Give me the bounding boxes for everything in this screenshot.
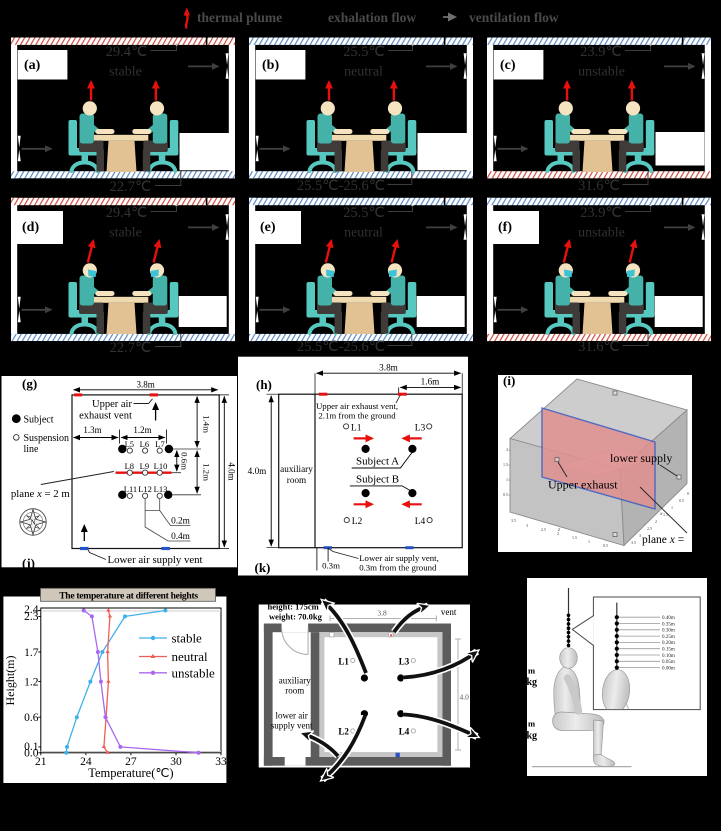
svg-text:L4: L4: [399, 727, 410, 737]
svg-text:25.5℃-25.6℃: 25.5℃-25.6℃: [297, 178, 385, 194]
svg-text:1.7: 1.7: [24, 647, 39, 659]
svg-text:height: 175cm: height: 175cm: [268, 602, 319, 612]
svg-text:thermal plume: thermal plume: [197, 10, 282, 25]
svg-text:2.5: 2.5: [647, 526, 652, 531]
svg-text:(k): (k): [255, 560, 271, 575]
svg-text:2: 2: [506, 447, 508, 452]
svg-text:(c): (c): [500, 58, 516, 73]
svg-text:vent: vent: [441, 607, 457, 617]
svg-text:(j): (j): [22, 556, 35, 571]
svg-text:0.4m: 0.4m: [171, 532, 191, 542]
svg-text:1: 1: [506, 477, 508, 482]
svg-text:auxiliary: auxiliary: [280, 464, 313, 474]
svg-text:neutral: neutral: [172, 649, 208, 664]
svg-text:Suspension: Suspension: [24, 433, 70, 444]
svg-text:L11: L11: [124, 484, 137, 494]
svg-text:unstable: unstable: [578, 65, 625, 80]
svg-text:lower supply: lower supply: [610, 451, 672, 465]
svg-text:0.5: 0.5: [603, 543, 608, 548]
svg-text:room: room: [287, 475, 306, 485]
svg-text:0.05m: 0.05m: [662, 659, 675, 665]
svg-text:room: room: [285, 686, 304, 696]
svg-text:23.9℃: 23.9℃: [580, 205, 622, 221]
svg-text:L3: L3: [399, 657, 410, 667]
svg-text:Height(m): Height(m): [3, 656, 17, 706]
svg-text:0.30m: 0.30m: [662, 628, 675, 634]
svg-text:(b): (b): [262, 58, 279, 73]
svg-text:lower air: lower air: [275, 711, 307, 721]
svg-text:m: m: [528, 666, 535, 676]
svg-text:3.5: 3.5: [511, 518, 516, 523]
svg-text:x: x: [659, 511, 663, 517]
svg-text:29.4℃: 29.4℃: [106, 44, 148, 60]
svg-text:auxiliary: auxiliary: [279, 676, 311, 686]
svg-text:23.9℃: 23.9℃: [580, 44, 622, 60]
svg-text:1.3m: 1.3m: [83, 425, 101, 435]
svg-text:stable: stable: [109, 65, 142, 80]
svg-text:0.5: 0.5: [503, 492, 508, 497]
svg-text:4.0m: 4.0m: [248, 466, 267, 476]
svg-text:exhalation flow: exhalation flow: [328, 10, 416, 25]
svg-text:4.0m: 4.0m: [227, 462, 237, 480]
svg-text:3.8m: 3.8m: [379, 363, 398, 373]
svg-text:1.2m: 1.2m: [202, 463, 212, 481]
svg-text:Subject A: Subject A: [356, 456, 399, 468]
svg-text:2.1m from the ground: 2.1m from the ground: [318, 411, 396, 421]
svg-text:33: 33: [215, 756, 227, 768]
svg-text:Upper air exhaust vent,: Upper air exhaust vent,: [316, 401, 398, 411]
svg-text:4.0: 4.0: [460, 693, 470, 702]
svg-text:m: m: [528, 719, 535, 729]
svg-text:0.5: 0.5: [679, 498, 684, 503]
svg-text:neutral: neutral: [344, 65, 383, 80]
svg-text:L3: L3: [415, 424, 426, 434]
svg-text:Upper exhaust: Upper exhaust: [548, 478, 618, 492]
svg-text:2.5: 2.5: [541, 527, 546, 532]
svg-text:Temperature(℃): Temperature(℃): [88, 766, 173, 780]
svg-text:Subject B: Subject B: [356, 474, 399, 486]
svg-text:Lower air supply vent: Lower air supply vent: [108, 554, 203, 566]
svg-text:1.2m: 1.2m: [133, 425, 151, 435]
svg-text:0.40m: 0.40m: [662, 615, 675, 621]
svg-text:(e): (e): [260, 220, 276, 235]
svg-text:0.2m: 0.2m: [171, 517, 191, 527]
svg-text:1.2: 1.2: [24, 677, 39, 689]
svg-text:25.5℃-25.6℃: 25.5℃-25.6℃: [297, 339, 385, 355]
svg-text:1.5: 1.5: [572, 535, 577, 540]
svg-text:L4: L4: [415, 517, 426, 527]
svg-text:0.3m from the ground: 0.3m from the ground: [359, 563, 437, 573]
svg-text:1.5: 1.5: [503, 462, 508, 467]
svg-text:0.6: 0.6: [24, 712, 39, 724]
svg-text:1.4m: 1.4m: [202, 415, 212, 433]
svg-text:25.5℃: 25.5℃: [343, 44, 385, 60]
svg-text:neutral: neutral: [344, 226, 383, 241]
svg-text:25.5℃: 25.5℃: [343, 205, 385, 221]
svg-text:Subject: Subject: [24, 415, 54, 426]
svg-text:L5: L5: [125, 439, 134, 449]
svg-text:L13: L13: [154, 484, 168, 494]
svg-text:0.1: 0.1: [24, 741, 39, 753]
svg-text:3: 3: [639, 533, 641, 538]
svg-text:31.6℃: 31.6℃: [578, 178, 620, 194]
svg-text:weight: 70.0kg: weight: 70.0kg: [269, 612, 323, 622]
svg-text:ventilation flow: ventilation flow: [469, 10, 559, 25]
svg-text:21: 21: [35, 756, 47, 768]
svg-text:L6: L6: [140, 439, 149, 449]
svg-text:supply vent: supply vent: [271, 721, 313, 731]
svg-text:L2: L2: [352, 517, 363, 527]
svg-text:0: 0: [687, 491, 689, 496]
svg-text:(f): (f): [498, 220, 512, 235]
svg-text:2.4: 2.4: [24, 604, 39, 616]
svg-text:unstable: unstable: [172, 665, 216, 680]
svg-text:2: 2: [655, 519, 657, 524]
svg-text:3.8: 3.8: [377, 609, 387, 618]
svg-text:The temperature at different h: The temperature at different heights: [59, 590, 198, 601]
svg-text:0.35m: 0.35m: [662, 621, 675, 627]
svg-text:1.5: 1.5: [663, 512, 668, 517]
svg-text:3: 3: [526, 523, 528, 528]
svg-text:line: line: [24, 444, 40, 455]
svg-text:L8: L8: [125, 461, 134, 471]
svg-text:0.3m: 0.3m: [322, 561, 340, 571]
svg-text:22.7℃: 22.7℃: [110, 179, 152, 195]
svg-text:L1: L1: [338, 657, 349, 667]
svg-text:stable: stable: [109, 226, 142, 241]
svg-text:3.8m: 3.8m: [136, 380, 154, 390]
svg-text:L10: L10: [154, 461, 168, 471]
svg-text:1: 1: [671, 505, 673, 510]
svg-text:0.6m: 0.6m: [180, 452, 190, 470]
svg-text:kg: kg: [527, 677, 538, 688]
svg-text:N: N: [30, 519, 35, 527]
svg-text:L7: L7: [155, 439, 164, 449]
svg-text:Lower air supply vent,: Lower air supply vent,: [359, 553, 439, 563]
svg-text:unstable: unstable: [578, 226, 625, 241]
svg-text:0.15m: 0.15m: [662, 647, 675, 653]
svg-text:plane x =: plane x =: [642, 534, 684, 546]
svg-text:29.4℃: 29.4℃: [106, 205, 148, 221]
svg-text:plane x = 2 m: plane x = 2 m: [11, 488, 70, 500]
svg-text:0.20m: 0.20m: [662, 640, 675, 646]
svg-text:0.10m: 0.10m: [662, 653, 675, 659]
svg-text:(g): (g): [22, 376, 37, 391]
svg-text:31.6℃: 31.6℃: [578, 339, 620, 355]
svg-text:(h): (h): [256, 377, 272, 392]
svg-text:L9: L9: [140, 461, 149, 471]
svg-text:L2: L2: [338, 727, 349, 737]
svg-text:(i): (i): [503, 373, 515, 388]
svg-text:kg: kg: [527, 731, 538, 742]
svg-text:stable: stable: [172, 631, 203, 646]
svg-text:0.25m: 0.25m: [662, 634, 675, 640]
svg-text:22.7℃: 22.7℃: [110, 340, 152, 356]
svg-text:(d): (d): [22, 220, 39, 235]
svg-text:1: 1: [588, 539, 590, 544]
svg-text:L1: L1: [351, 424, 362, 434]
svg-text:3.5: 3.5: [631, 540, 636, 545]
svg-text:exhaust vent: exhaust vent: [79, 411, 132, 422]
svg-text:1.6m: 1.6m: [421, 377, 440, 387]
svg-text:Upper air: Upper air: [92, 399, 132, 410]
svg-text:L12: L12: [138, 484, 152, 494]
svg-text:(a): (a): [24, 58, 41, 73]
svg-text:0.00m: 0.00m: [662, 665, 675, 671]
